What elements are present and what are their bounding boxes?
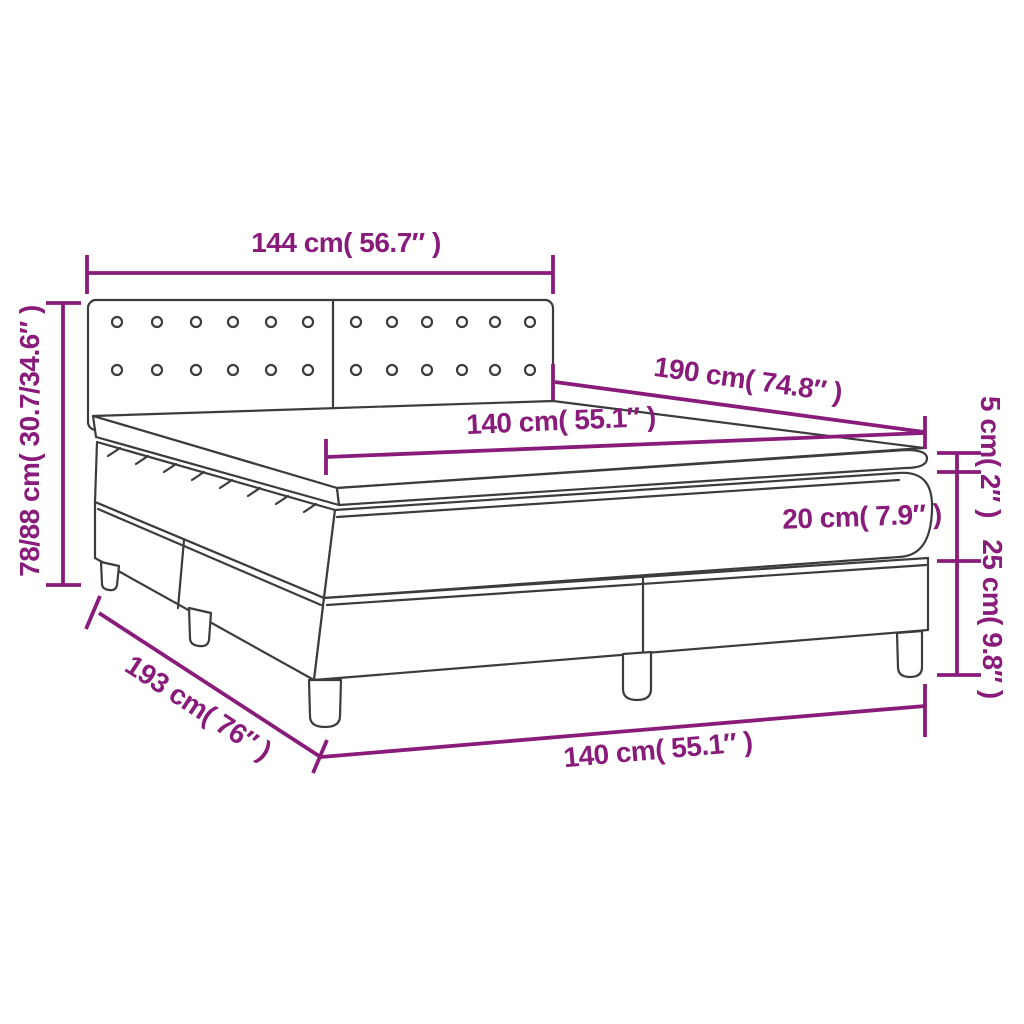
label-headboard-width: 144 cm( 56.7″ ): [251, 227, 441, 259]
dimension-diagram: 144 cm( 56.7″ ) 78/88 cm( 30.7/34.6″ ) 1…: [0, 0, 1024, 1024]
label-overall-height: 78/88 cm( 30.7/34.6″ ): [14, 305, 46, 577]
label-topper-thickness: 5 cm( 2″ ): [974, 396, 1006, 518]
label-base-height: 25 cm( 9.8″ ): [976, 539, 1008, 698]
leg-front-corner: [309, 680, 341, 727]
dim-overall-height: [46, 303, 81, 585]
leg-front-middle: [623, 652, 651, 700]
leg-left-1: [101, 562, 119, 590]
dim-headboard-width: [87, 255, 553, 294]
leg-left-2: [189, 608, 211, 646]
leg-front-right: [897, 631, 922, 677]
label-mattress-thickness: 20 cm( 7.9″ ): [782, 498, 942, 536]
